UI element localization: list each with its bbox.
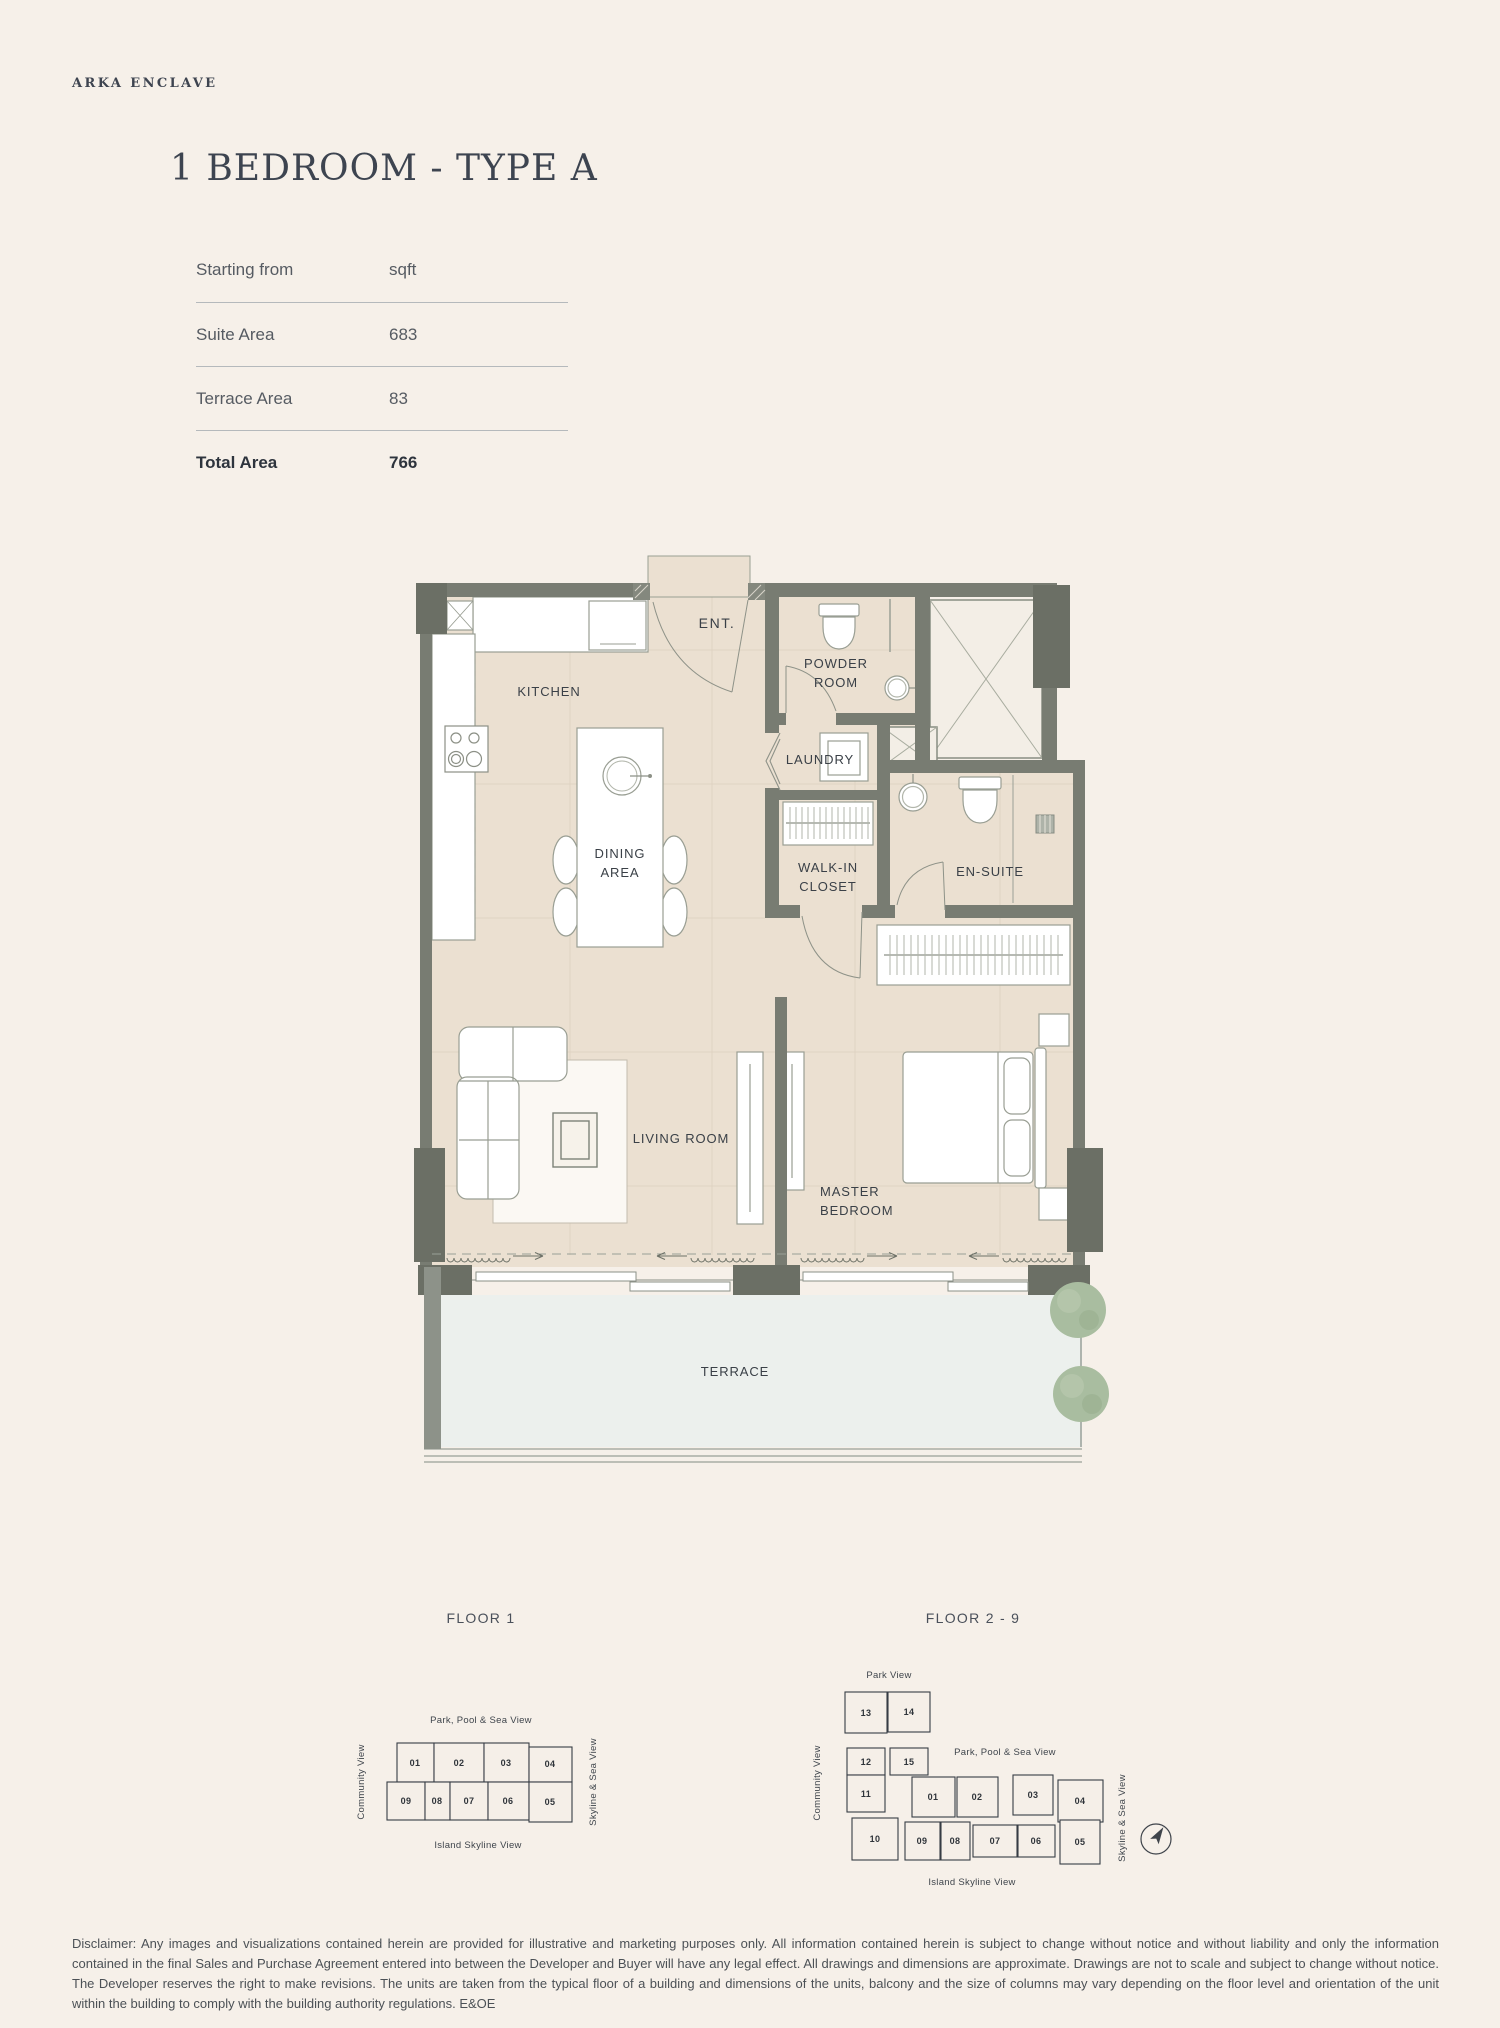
unit-number: 06 bbox=[503, 1796, 514, 1806]
unit-number: 12 bbox=[861, 1757, 872, 1767]
table-row: Suite Area 683 bbox=[196, 302, 568, 366]
unit-number: 01 bbox=[928, 1792, 939, 1802]
suite-area-value: 683 bbox=[389, 325, 568, 345]
label-laundry: LAUNDRY bbox=[786, 752, 854, 767]
view-label-bottom: Island Skyline View bbox=[434, 1840, 521, 1851]
unit-number: 05 bbox=[545, 1797, 556, 1807]
unit-number: 08 bbox=[432, 1796, 443, 1806]
unit-number: 09 bbox=[401, 1796, 412, 1806]
label-kitchen: KITCHEN bbox=[517, 684, 580, 699]
unit-number: 03 bbox=[501, 1758, 512, 1768]
view-label-top: Park View bbox=[866, 1670, 911, 1681]
unit-number: 02 bbox=[454, 1758, 465, 1768]
closet-rail bbox=[783, 802, 873, 845]
label-master-2: BEDROOM bbox=[820, 1203, 893, 1218]
table-row: Terrace Area 83 bbox=[196, 366, 568, 430]
unit-number: 06 bbox=[1031, 1836, 1042, 1846]
floor1-heading: FLOOR 1 bbox=[401, 1610, 561, 1626]
unit-number: 15 bbox=[904, 1757, 915, 1767]
tree bbox=[1050, 1282, 1106, 1338]
unit-number: 01 bbox=[410, 1758, 421, 1768]
stove bbox=[445, 726, 488, 772]
page-title: 1 BEDROOM - TYPE A bbox=[170, 148, 598, 189]
area-header-unit: sqft bbox=[389, 260, 568, 280]
view-label-left: Community View bbox=[812, 1745, 823, 1820]
unit-number: 04 bbox=[545, 1759, 556, 1769]
unit-number: 11 bbox=[861, 1789, 871, 1799]
unit-number: 10 bbox=[870, 1834, 881, 1844]
terrace-area-value: 83 bbox=[389, 389, 568, 409]
area-table-header: Starting from sqft bbox=[196, 238, 568, 302]
label-powder-2: ROOM bbox=[814, 675, 858, 690]
keyplan-floor29: Park View 13 14 12 15 11 01 02 03 04 10 … bbox=[800, 1655, 1175, 1900]
label-walkin-2: CLOSET bbox=[799, 879, 856, 894]
brand-name: ARKA ENCLAVE bbox=[72, 76, 218, 91]
label-dining-2: AREA bbox=[600, 865, 639, 880]
unit-number: 13 bbox=[861, 1708, 872, 1718]
area-header-label: Starting from bbox=[196, 260, 389, 280]
floor-plan: KITCHEN ENT. POWDER ROOM LAUNDRY DINING … bbox=[405, 550, 1115, 1470]
label-powder-1: POWDER bbox=[804, 656, 868, 671]
view-label-right: Skyline & Sea View bbox=[588, 1738, 599, 1826]
unit-number: 03 bbox=[1028, 1790, 1039, 1800]
keyplan-floor1: Park, Pool & Sea View 01 02 03 04 09 08 … bbox=[348, 1696, 612, 1866]
unit-number: 04 bbox=[1075, 1796, 1086, 1806]
wardrobe-rail bbox=[877, 925, 1070, 985]
label-walkin-1: WALK-IN bbox=[798, 860, 858, 875]
floor29-heading: FLOOR 2 - 9 bbox=[893, 1610, 1053, 1626]
view-label-bottom: Island Skyline View bbox=[928, 1877, 1015, 1888]
unit-number: 08 bbox=[950, 1836, 961, 1846]
label-ensuite: EN-SUITE bbox=[956, 864, 1024, 879]
area-table: Starting from sqft Suite Area 683 Terrac… bbox=[196, 238, 568, 494]
brochure-page: ARKA ENCLAVE 1 BEDROOM - TYPE A Starting… bbox=[0, 0, 1500, 2028]
view-label-left: Community View bbox=[356, 1744, 367, 1819]
label-ent: ENT. bbox=[699, 615, 736, 631]
label-dining-1: DINING bbox=[595, 846, 646, 861]
label-master-1: MASTER bbox=[820, 1184, 880, 1199]
view-label-right: Skyline & Sea View bbox=[1117, 1774, 1128, 1862]
label-terrace: TERRACE bbox=[701, 1364, 769, 1379]
compass-icon bbox=[1141, 1824, 1171, 1854]
tree bbox=[1053, 1366, 1109, 1422]
elevator-shaft bbox=[930, 600, 1042, 758]
keyplan1-units bbox=[387, 1743, 572, 1822]
coffee-table bbox=[553, 1113, 597, 1167]
unit-number: 05 bbox=[1075, 1837, 1086, 1847]
view-label-top: Park, Pool & Sea View bbox=[430, 1715, 532, 1726]
disclaimer-text: Disclaimer: Any images and visualization… bbox=[72, 1934, 1439, 2014]
total-area-value: 766 bbox=[389, 453, 568, 473]
keyplan29-units bbox=[845, 1692, 1103, 1864]
terrace-wall bbox=[424, 1267, 441, 1449]
suite-area-label: Suite Area bbox=[196, 325, 389, 345]
terrace-area-label: Terrace Area bbox=[196, 389, 389, 409]
total-area-label: Total Area bbox=[196, 453, 389, 473]
view-label-mid: Park, Pool & Sea View bbox=[954, 1747, 1056, 1758]
unit-number: 07 bbox=[464, 1796, 475, 1806]
table-row-total: Total Area 766 bbox=[196, 430, 568, 494]
unit-number: 14 bbox=[904, 1707, 915, 1717]
label-living: LIVING ROOM bbox=[633, 1131, 730, 1146]
unit-number: 02 bbox=[972, 1792, 983, 1802]
unit-number: 07 bbox=[990, 1836, 1001, 1846]
unit-number: 09 bbox=[917, 1836, 928, 1846]
